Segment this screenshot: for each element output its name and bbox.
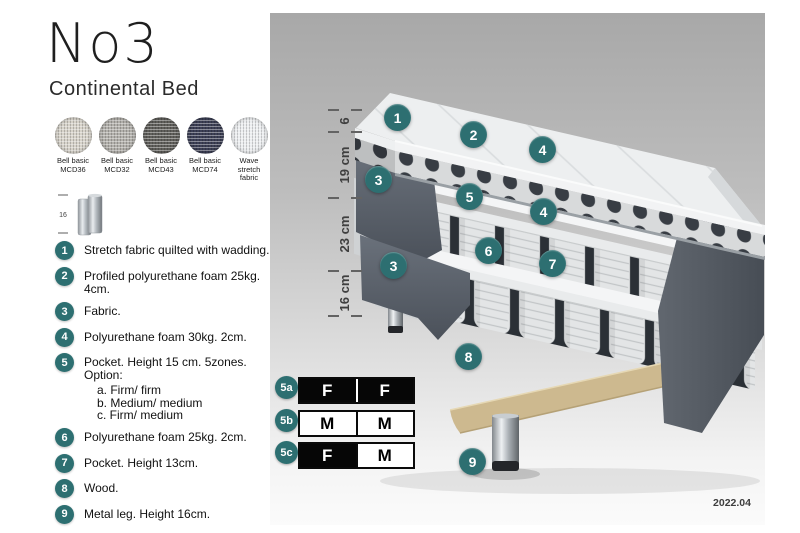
illustration-panel: 6 19 cm 23 cm 16 cm 1 2 4 3 5 4 6 7 3 8 … [270, 13, 765, 525]
firmness-cell: F [300, 379, 356, 402]
item-number-badge: 4 [55, 328, 74, 347]
firmness-badge-5c: 5c [275, 441, 298, 464]
fabric-swatch-circle [55, 117, 92, 154]
item-text: Metal leg. Height 16cm. [84, 505, 210, 521]
page-title: No3 [46, 12, 160, 75]
scale-tick [351, 197, 362, 199]
item-number-badge: 9 [55, 505, 74, 524]
firmness-row-5c: F M [298, 442, 415, 469]
item-options: a. Firm/ firm b. Medium/ medium c. Firm/… [97, 384, 273, 422]
measurement-label-leg: 16 cm [336, 263, 354, 323]
firmness-badge-5b: 5b [275, 409, 298, 432]
firmness-cell: F [356, 379, 414, 402]
item-text: Wood. [84, 479, 118, 495]
list-item: 7 Pocket. Height 13cm. [55, 454, 273, 473]
swatch-code: stretch fabric [238, 165, 261, 183]
list-item: 4 Polyurethane foam 30kg. 2cm. [55, 328, 273, 347]
list-item: 6 Polyurethane foam 25kg. 2cm. [55, 428, 273, 447]
firmness-row-5a: F F [298, 377, 415, 404]
leg-cylinder-front [88, 195, 102, 233]
callout-1: 1 [384, 104, 411, 131]
item-text: Profiled polyurethane foam 25kg. 4cm. [84, 267, 273, 296]
callout-5: 5 [456, 183, 483, 210]
callout-3-upper: 3 [365, 166, 392, 193]
list-item: 5 Pocket. Height 15 cm. 5zones. Option: … [55, 353, 273, 422]
item-text: Fabric. [84, 302, 121, 318]
option-a: a. Firm/ firm [97, 384, 273, 397]
fabric-swatch: Wave stretch fabric [228, 117, 270, 183]
option-c: c. Firm/ medium [97, 409, 273, 422]
list-item: 9 Metal leg. Height 16cm. [55, 505, 273, 524]
item-number-badge: 1 [55, 241, 74, 260]
item-text: Pocket. Height 13cm. [84, 454, 198, 470]
firmness-cell: M [356, 444, 414, 467]
item-number-badge: 8 [55, 479, 74, 498]
firmness-badge-5a: 5a [275, 376, 298, 399]
page-subtitle: Continental Bed [49, 78, 199, 101]
materials-list: 1 Stretch fabric quilted with wadding. 2… [55, 241, 273, 530]
firmness-cell: M [356, 412, 414, 435]
measurement-label-lower: 23 cm [336, 204, 354, 264]
leg-dimension-thumbnail: 16 [50, 186, 124, 245]
callout-4-upper: 4 [529, 136, 556, 163]
swatch-code: MCD36 [60, 165, 85, 174]
item-number-badge: 6 [55, 428, 74, 447]
fabric-swatch: Bell basic MCD74 [184, 117, 226, 183]
firmness-cell: F [300, 444, 356, 467]
fabric-swatch-circle [143, 117, 180, 154]
list-item: 3 Fabric. [55, 302, 273, 321]
fabric-swatch-circle [231, 117, 268, 154]
leg-height-label: 16 [59, 212, 67, 219]
fabric-swatch-circle [99, 117, 136, 154]
list-item: 1 Stretch fabric quilted with wadding. [55, 241, 273, 260]
callout-3-lower: 3 [380, 252, 407, 279]
ground-shadow [380, 468, 760, 494]
swatch-code: MCD74 [192, 165, 217, 174]
measurement-label-middle: 19 cm [336, 135, 354, 195]
callout-7: 7 [539, 250, 566, 277]
scale-tick [328, 197, 339, 199]
fabric-swatch: Bell basic MCD36 [52, 117, 94, 183]
item-text: Stretch fabric quilted with wadding. [84, 241, 269, 257]
swatch-code: MCD32 [104, 165, 129, 174]
item-number-badge: 5 [55, 353, 74, 372]
item-text: Polyurethane foam 25kg. 2cm. [84, 428, 247, 444]
callout-6: 6 [475, 237, 502, 264]
fabric-swatch: Bell basic MCD43 [140, 117, 182, 183]
item-number-badge: 7 [55, 454, 74, 473]
item-number-badge: 3 [55, 302, 74, 321]
item-text-main: Pocket. Height 15 cm. 5zones. Option: [84, 355, 247, 382]
fabric-swatch-circle [187, 117, 224, 154]
callout-2: 2 [460, 121, 487, 148]
item-number-badge: 2 [55, 267, 74, 286]
fabric-swatches: Bell basic MCD36 Bell basic MCD32 Bell b… [52, 117, 270, 183]
swatch-code: MCD43 [148, 165, 173, 174]
callout-4-lower: 4 [530, 198, 557, 225]
fabric-swatch: Bell basic MCD32 [96, 117, 138, 183]
item-text: Pocket. Height 15 cm. 5zones. Option: a.… [84, 353, 273, 422]
firmness-cell: M [300, 412, 356, 435]
list-item: 8 Wood. [55, 479, 273, 498]
callout-9: 9 [459, 448, 486, 475]
version-date: 2022.04 [713, 497, 751, 509]
list-item: 2 Profiled polyurethane foam 25kg. 4cm. [55, 267, 273, 296]
callout-8: 8 [455, 343, 482, 370]
firmness-row-5b: M M [298, 410, 415, 437]
item-text: Polyurethane foam 30kg. 2cm. [84, 328, 247, 344]
